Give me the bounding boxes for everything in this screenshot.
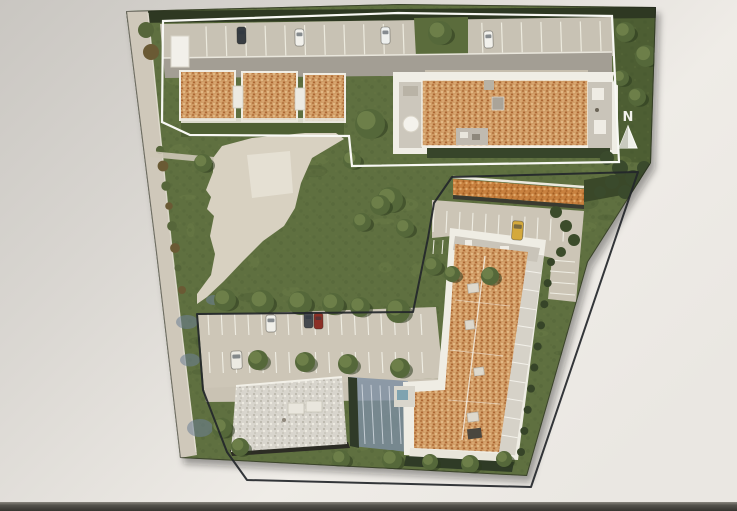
tree-highlight (252, 292, 267, 307)
patio-2 (295, 88, 305, 110)
shrub (165, 202, 173, 210)
car (231, 351, 243, 369)
car (266, 315, 276, 332)
car-body (231, 351, 243, 369)
tree-highlight (383, 451, 395, 463)
screen-photo: N (0, 0, 737, 511)
hedge-bush (594, 186, 606, 198)
house-1-roof (181, 72, 234, 119)
car-windshield (382, 30, 388, 34)
flat-roof (231, 377, 347, 452)
hedge-bush (568, 234, 580, 246)
north-label: N (623, 110, 634, 125)
roof-vent (282, 418, 286, 422)
car-windshield (514, 224, 522, 229)
tree-highlight (616, 23, 628, 35)
shrub (170, 243, 180, 253)
car-body (266, 315, 276, 332)
car (295, 29, 304, 46)
plaza-pad (247, 151, 293, 198)
car (484, 31, 494, 48)
car (314, 313, 323, 329)
tree-highlight (629, 89, 640, 100)
roof-unit (592, 88, 604, 100)
hedge-bush (537, 321, 545, 329)
car (511, 221, 523, 241)
tree-highlight (215, 290, 229, 304)
shed (171, 36, 189, 67)
hedge-bush (605, 175, 619, 189)
tree-highlight (425, 258, 436, 269)
patio-1 (233, 86, 243, 108)
roof-unit (306, 401, 322, 412)
shrub (167, 221, 177, 231)
car-windshield (296, 32, 302, 36)
car-windshield (238, 30, 244, 34)
roof-unit (492, 97, 504, 110)
tree-highlight (423, 455, 433, 465)
car (304, 312, 313, 328)
car-windshield (267, 318, 274, 322)
hedge-bush (556, 247, 566, 257)
tree-highlight (232, 439, 243, 450)
house-3-roof (305, 75, 344, 121)
shrub (158, 161, 169, 172)
tree-highlight (482, 268, 493, 279)
tree-highlight (323, 294, 337, 308)
car-body (314, 313, 323, 329)
hedge-bush (560, 220, 572, 232)
shrub (161, 181, 170, 190)
tree-highlight (445, 267, 455, 277)
hedge-bush (534, 342, 542, 350)
roof-unit (460, 132, 468, 138)
tree-highlight (354, 214, 365, 225)
shrub (178, 286, 186, 294)
car-body (304, 312, 313, 328)
car-body (237, 27, 246, 44)
tree-highlight (397, 220, 408, 231)
car-windshield (315, 316, 321, 320)
shrub (143, 44, 159, 60)
car-body (511, 221, 523, 241)
house-row (179, 70, 346, 137)
tree-highlight (339, 355, 351, 367)
roof-vent (595, 108, 599, 112)
car-body (295, 29, 304, 46)
hedge-bush (524, 406, 532, 414)
roof-unit (472, 134, 480, 140)
hedge-bush (550, 206, 562, 218)
south-hedge-row (427, 148, 610, 158)
tree-highlight (636, 46, 650, 60)
hedge-bush (540, 300, 548, 308)
tree-highlight (357, 111, 376, 130)
roof-unit (403, 86, 418, 96)
tree-highlight (497, 452, 507, 462)
shrub (174, 264, 181, 271)
car (237, 27, 246, 44)
hedge-bush (530, 364, 538, 372)
screen-bottom-bar (0, 502, 737, 511)
roof-unit (594, 120, 606, 134)
car-body (484, 31, 494, 48)
car-windshield (485, 34, 491, 38)
building-north (393, 70, 618, 158)
roof-notch (484, 80, 494, 90)
tree-highlight (249, 351, 261, 363)
shade-blob (176, 315, 198, 329)
shade-blob (180, 354, 200, 367)
tree-highlight (195, 155, 206, 166)
house-terrace-edge (181, 118, 344, 123)
car-windshield (232, 354, 240, 358)
tree-highlight (371, 196, 383, 208)
shrub (138, 22, 154, 38)
hedge-bush (520, 427, 528, 435)
shade-blob (187, 419, 213, 437)
car-windshield (305, 315, 311, 319)
terrace-canopy (403, 116, 419, 132)
car (381, 27, 390, 44)
tree-highlight (296, 353, 308, 365)
site-plan-image: N (0, 0, 737, 511)
house-2-roof (243, 73, 296, 120)
hedge-bush (517, 448, 525, 456)
tree-highlight (333, 451, 344, 462)
small-pool (397, 390, 408, 400)
tree-highlight (290, 293, 305, 308)
hedge-bush (544, 279, 552, 287)
tree-highlight (391, 359, 403, 371)
tree-highlight (462, 456, 473, 467)
tree-highlight (430, 23, 445, 38)
roof-unit (288, 403, 304, 414)
building-north-roof (422, 80, 588, 146)
hedge-bush (527, 385, 535, 393)
car-body (381, 27, 390, 44)
hedge-bush (547, 258, 555, 266)
tree-highlight (351, 298, 363, 310)
